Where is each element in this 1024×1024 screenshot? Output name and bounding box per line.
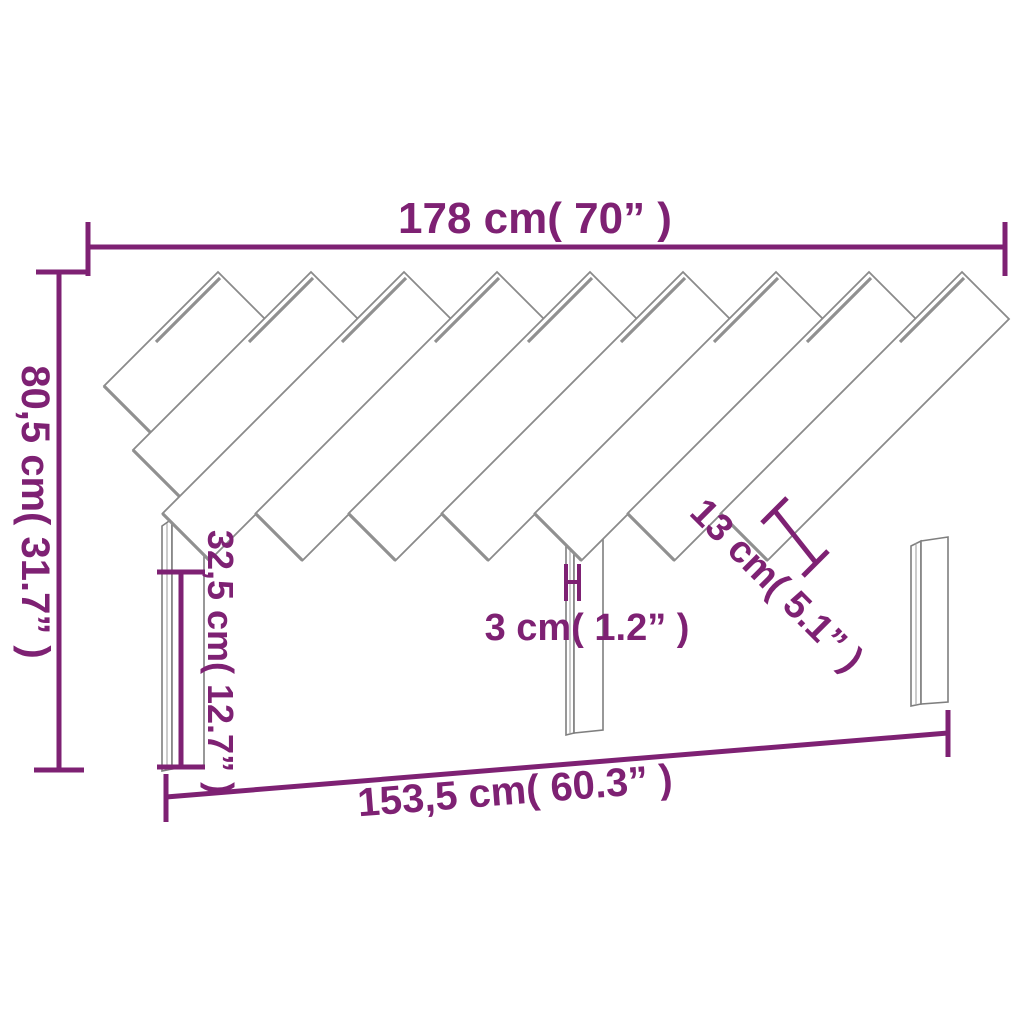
left-height-label: 80,5 cm( 31.7” ) [13,365,57,659]
right-leg-front-face [921,537,948,704]
top-width-label: 178 cm( 70” ) [398,194,672,243]
right-leg [911,537,948,706]
leg-height-label: 32,5 cm( 12.7” ) [200,530,241,794]
diagram-page: 178 cm( 70” ) 80,5 cm( 31.7” ) 32,5 cm( … [0,0,1024,1024]
headboard-dimension-diagram: 178 cm( 70” ) 80,5 cm( 31.7” ) 32,5 cm( … [0,0,1024,1024]
board-thickness-label: 3 cm( 1.2” ) [485,607,690,649]
